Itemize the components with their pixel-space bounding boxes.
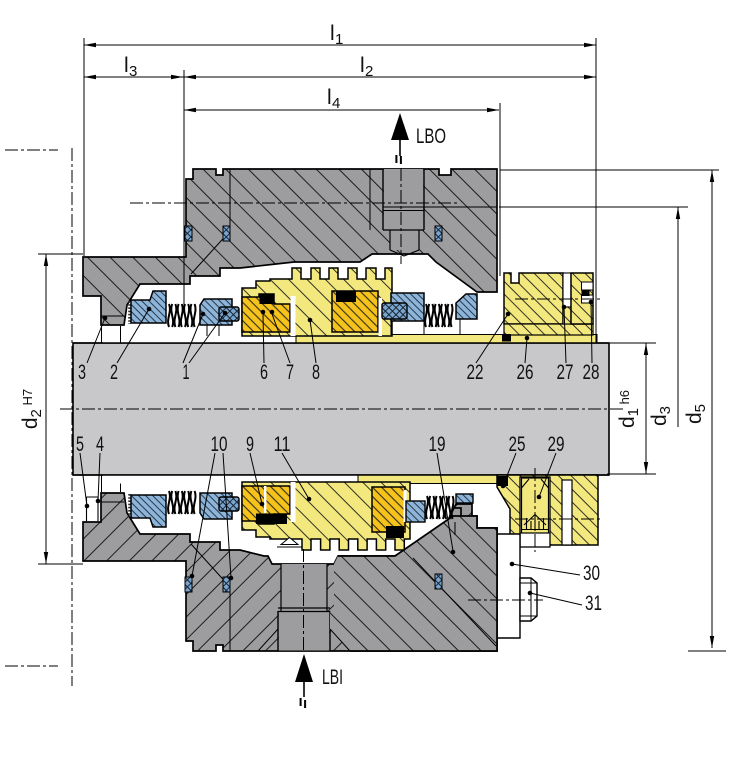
svg-text:19: 19: [429, 433, 446, 456]
svg-text:22: 22: [467, 361, 484, 384]
svg-text:LBO: LBO: [416, 125, 446, 148]
svg-text:29: 29: [548, 433, 565, 456]
svg-text:2: 2: [110, 361, 118, 384]
svg-text:8: 8: [312, 361, 320, 384]
svg-text:10: 10: [211, 433, 228, 456]
svg-text:11: 11: [274, 433, 291, 456]
svg-text:9: 9: [246, 433, 254, 456]
svg-text:1: 1: [183, 361, 190, 384]
svg-text:27: 27: [557, 361, 574, 384]
svg-text:2: 2: [365, 63, 373, 80]
svg-text:25: 25: [509, 433, 526, 456]
svg-text:3: 3: [78, 361, 86, 384]
svg-text:31: 31: [585, 592, 602, 615]
svg-text:l: l: [124, 54, 129, 77]
svg-text:l: l: [327, 86, 332, 109]
svg-text:1: 1: [335, 31, 343, 48]
svg-text:7: 7: [286, 361, 294, 384]
svg-text:4: 4: [96, 433, 104, 456]
svg-text:LBI: LBI: [322, 666, 343, 689]
svg-text:30: 30: [583, 562, 600, 585]
svg-text:3: 3: [129, 63, 137, 80]
svg-text:5: 5: [76, 433, 84, 456]
svg-text:4: 4: [332, 95, 340, 112]
svg-text:l: l: [330, 22, 335, 45]
svg-text:28: 28: [583, 361, 600, 384]
svg-text:l: l: [360, 54, 365, 77]
svg-text:26: 26: [517, 361, 534, 384]
svg-text:6: 6: [260, 361, 268, 384]
